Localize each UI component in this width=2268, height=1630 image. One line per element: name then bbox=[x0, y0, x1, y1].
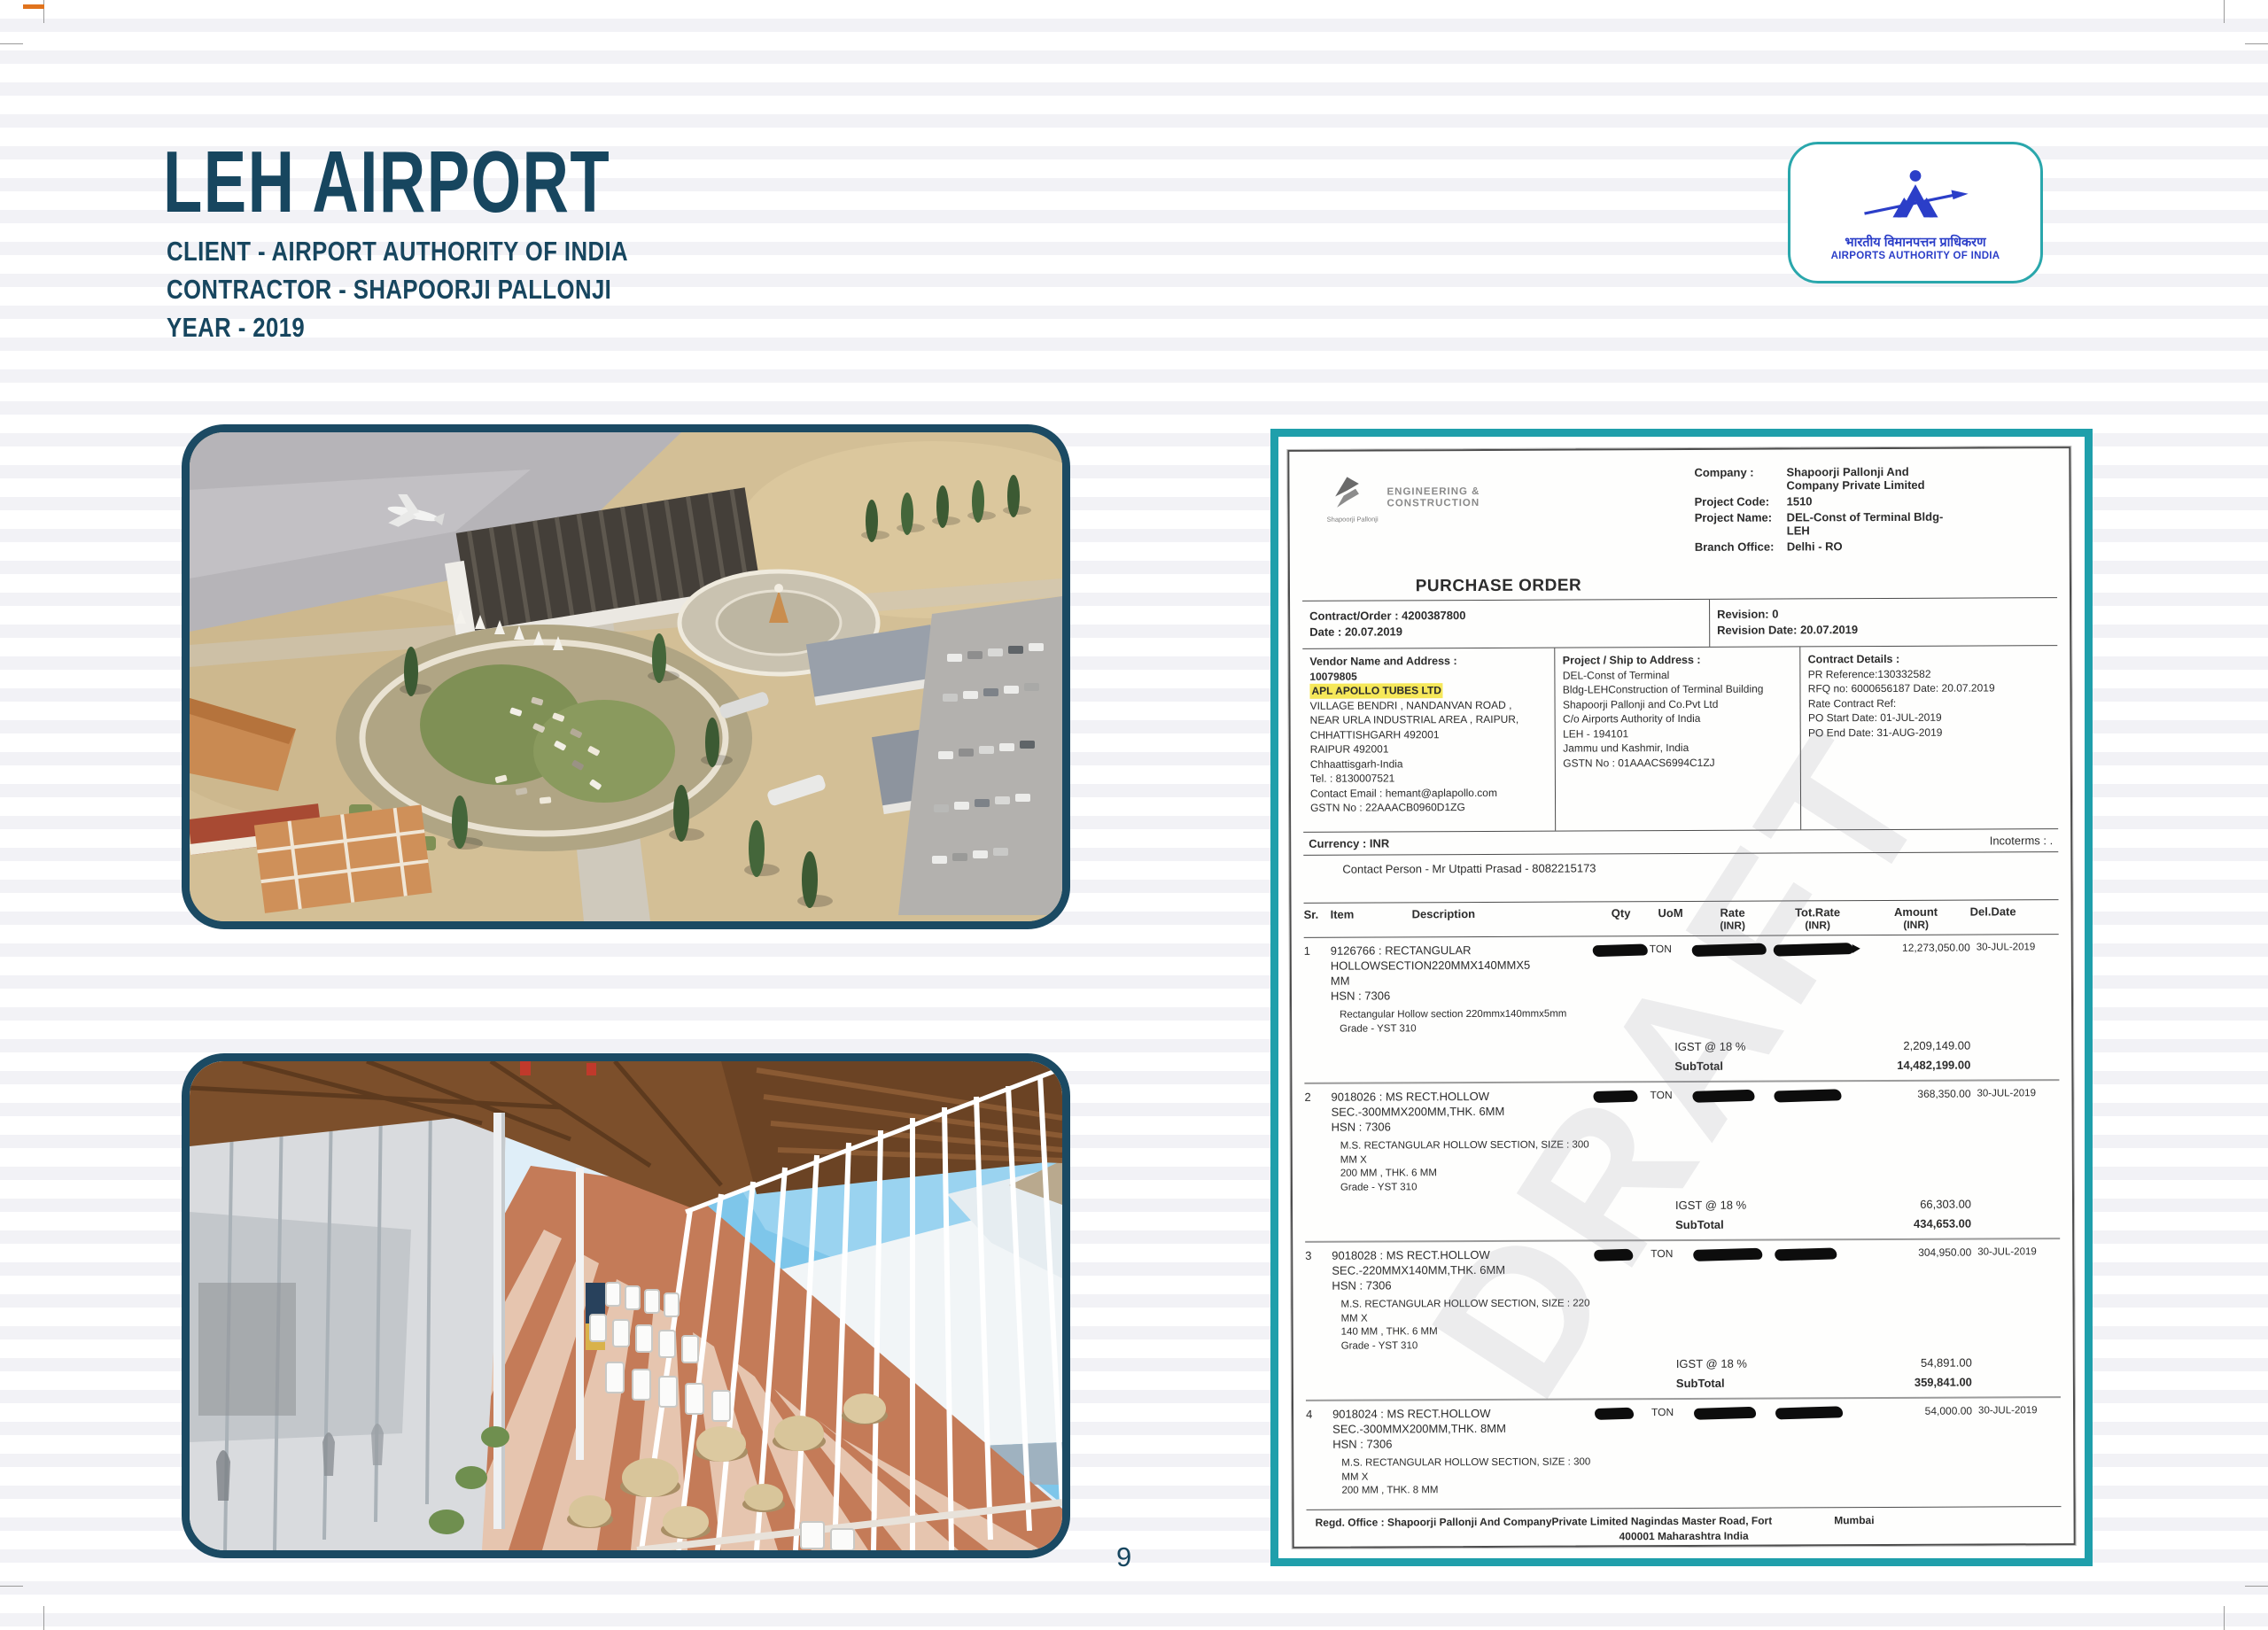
incoterms: Incoterms : . bbox=[1990, 834, 2054, 847]
currency: Currency : INR bbox=[1309, 836, 1389, 850]
redaction-mark bbox=[1775, 1247, 1837, 1261]
po-contract-row: Contract/Order : 4200387800 Date : 20.07… bbox=[1302, 597, 2057, 649]
revision-date: Revision Date: 20.07.2019 bbox=[1717, 622, 2050, 637]
purchase-order-document: DRAFT Shapoorji Pallonji ENGINEERING & C… bbox=[1287, 446, 2075, 1548]
aai-logo-box: भारतीय विमानपत्तन प्राधिकरण AIRPORTS AUT… bbox=[1788, 142, 2043, 283]
project-code-label: Project Code: bbox=[1695, 494, 1787, 508]
page-number: 9 bbox=[1116, 1541, 1131, 1573]
crop-mark bbox=[43, 0, 44, 23]
redaction-mark bbox=[1692, 943, 1767, 958]
branch-office-value: Delhi - RO bbox=[1787, 539, 1951, 554]
contract-date: Date : 20.07.2019 bbox=[1309, 624, 1702, 639]
print-registration-mark bbox=[23, 4, 44, 9]
contract-details-block: Contract Details : PR Reference:13033258… bbox=[1801, 646, 2059, 829]
client-line: CLIENT - AIRPORT AUTHORITY OF INDIA bbox=[167, 232, 628, 270]
sp-logo-caption: Shapoorji Pallonji bbox=[1327, 515, 1379, 523]
redaction-mark bbox=[1593, 943, 1648, 957]
crop-mark bbox=[2245, 43, 2268, 44]
terrace-render-illustration bbox=[190, 1061, 1062, 1550]
po-title: PURCHASE ORDER bbox=[1302, 576, 1695, 597]
sp-logo-icon: Shapoorji Pallonji bbox=[1326, 472, 1378, 523]
revision: Revision: 0 bbox=[1717, 606, 2050, 621]
po-item-row: 3 9018028 : MS RECT.HOLLOW TON 304,950.0… bbox=[1305, 1238, 2061, 1400]
regd-office-line: Regd. Office : Shapoorji Pallonji And Co… bbox=[1316, 1513, 1773, 1530]
redaction-mark bbox=[1593, 1091, 1637, 1104]
redaction-mark bbox=[1775, 1406, 1843, 1419]
terrace-render-image bbox=[182, 1053, 1070, 1558]
contract-order: Contract/Order : 4200387800 bbox=[1309, 608, 1702, 623]
po-address-row: Vendor Name and Address : 10079805 APL A… bbox=[1302, 646, 2058, 833]
po-item-row: 1 9126766 : RECTANGULAR TON 12,273,050.0… bbox=[1304, 935, 2060, 1083]
project-code-value: 1510 bbox=[1787, 494, 1951, 508]
branch-office-label: Branch Office: bbox=[1695, 539, 1787, 553]
redaction-mark bbox=[1694, 1407, 1756, 1420]
ship-to-block: Project / Ship to Address : DEL-Const of… bbox=[1556, 647, 1802, 830]
project-name-value: DEL-Const of Terminal Bldg-LEH bbox=[1787, 510, 1951, 538]
redaction-mark bbox=[1774, 943, 1853, 957]
crop-mark bbox=[0, 1586, 23, 1587]
redaction-mark bbox=[1594, 1249, 1633, 1261]
crop-mark bbox=[0, 43, 23, 44]
redaction-mark bbox=[1595, 1408, 1634, 1420]
project-name-label: Project Name: bbox=[1695, 510, 1787, 537]
regd-office-city: Mumbai bbox=[1834, 1513, 1874, 1528]
po-contact-row: Contact Person - Mr Utpatti Prasad - 808… bbox=[1303, 852, 2058, 903]
vendor-address-block: Vendor Name and Address : 10079805 APL A… bbox=[1302, 648, 1556, 832]
aerial-render-image bbox=[182, 424, 1070, 929]
po-item-row: 2 9018026 : MS RECT.HOLLOW TON 368,350.0… bbox=[1304, 1079, 2060, 1241]
contractor-line: CONTRACTOR - SHAPOORJI PALLONJI bbox=[167, 270, 628, 308]
crop-mark bbox=[2245, 1586, 2268, 1587]
redaction-mark bbox=[1693, 1248, 1762, 1261]
aerial-render-illustration bbox=[190, 432, 1062, 921]
po-header: Shapoorji Pallonji ENGINEERING & CONSTRU… bbox=[1301, 457, 2057, 601]
year-line: YEAR - 2019 bbox=[167, 308, 628, 346]
aai-hindi-text: भारतीय विमानपत्तन प्राधिकरण bbox=[1845, 233, 1985, 251]
po-currency-row: Currency : INR Incoterms : . bbox=[1303, 829, 2058, 856]
po-footer: Regd. Office : Shapoorji Pallonji And Co… bbox=[1307, 1506, 2062, 1548]
project-meta-lines: CLIENT - AIRPORT AUTHORITY OF INDIA CONT… bbox=[167, 232, 628, 346]
po-item-row: 4 9018024 : MS RECT.HOLLOW TON 54,000.00… bbox=[1306, 1396, 2062, 1505]
aai-english-text: AIRPORTS AUTHORITY OF INDIA bbox=[1831, 251, 2000, 261]
company-label: Company : bbox=[1694, 465, 1786, 492]
page-title: LEH AIRPORT bbox=[163, 138, 610, 225]
po-meta: Company :Shapoorji Pallonji And Company … bbox=[1694, 457, 2057, 599]
aai-logo-icon bbox=[1849, 168, 1982, 231]
redaction-mark bbox=[1774, 1089, 1841, 1102]
company-value: Shapoorji Pallonji And Company Private L… bbox=[1786, 465, 1950, 493]
po-table-header: Sr. Item Description Qty UoM Rate(INR) T… bbox=[1304, 899, 2059, 938]
crop-mark bbox=[43, 1606, 44, 1630]
page-header: LEH AIRPORT bbox=[163, 138, 768, 225]
crop-mark bbox=[2224, 0, 2225, 23]
redaction-mark bbox=[1692, 1090, 1754, 1103]
sp-tagline: ENGINEERING & CONSTRUCTION bbox=[1386, 485, 1480, 508]
crop-mark bbox=[2224, 1606, 2225, 1630]
purchase-order-frame: DRAFT Shapoorji Pallonji ENGINEERING & C… bbox=[1270, 429, 2093, 1566]
vendor-name-highlighted: APL APOLLO TUBES LTD bbox=[1309, 683, 1443, 698]
